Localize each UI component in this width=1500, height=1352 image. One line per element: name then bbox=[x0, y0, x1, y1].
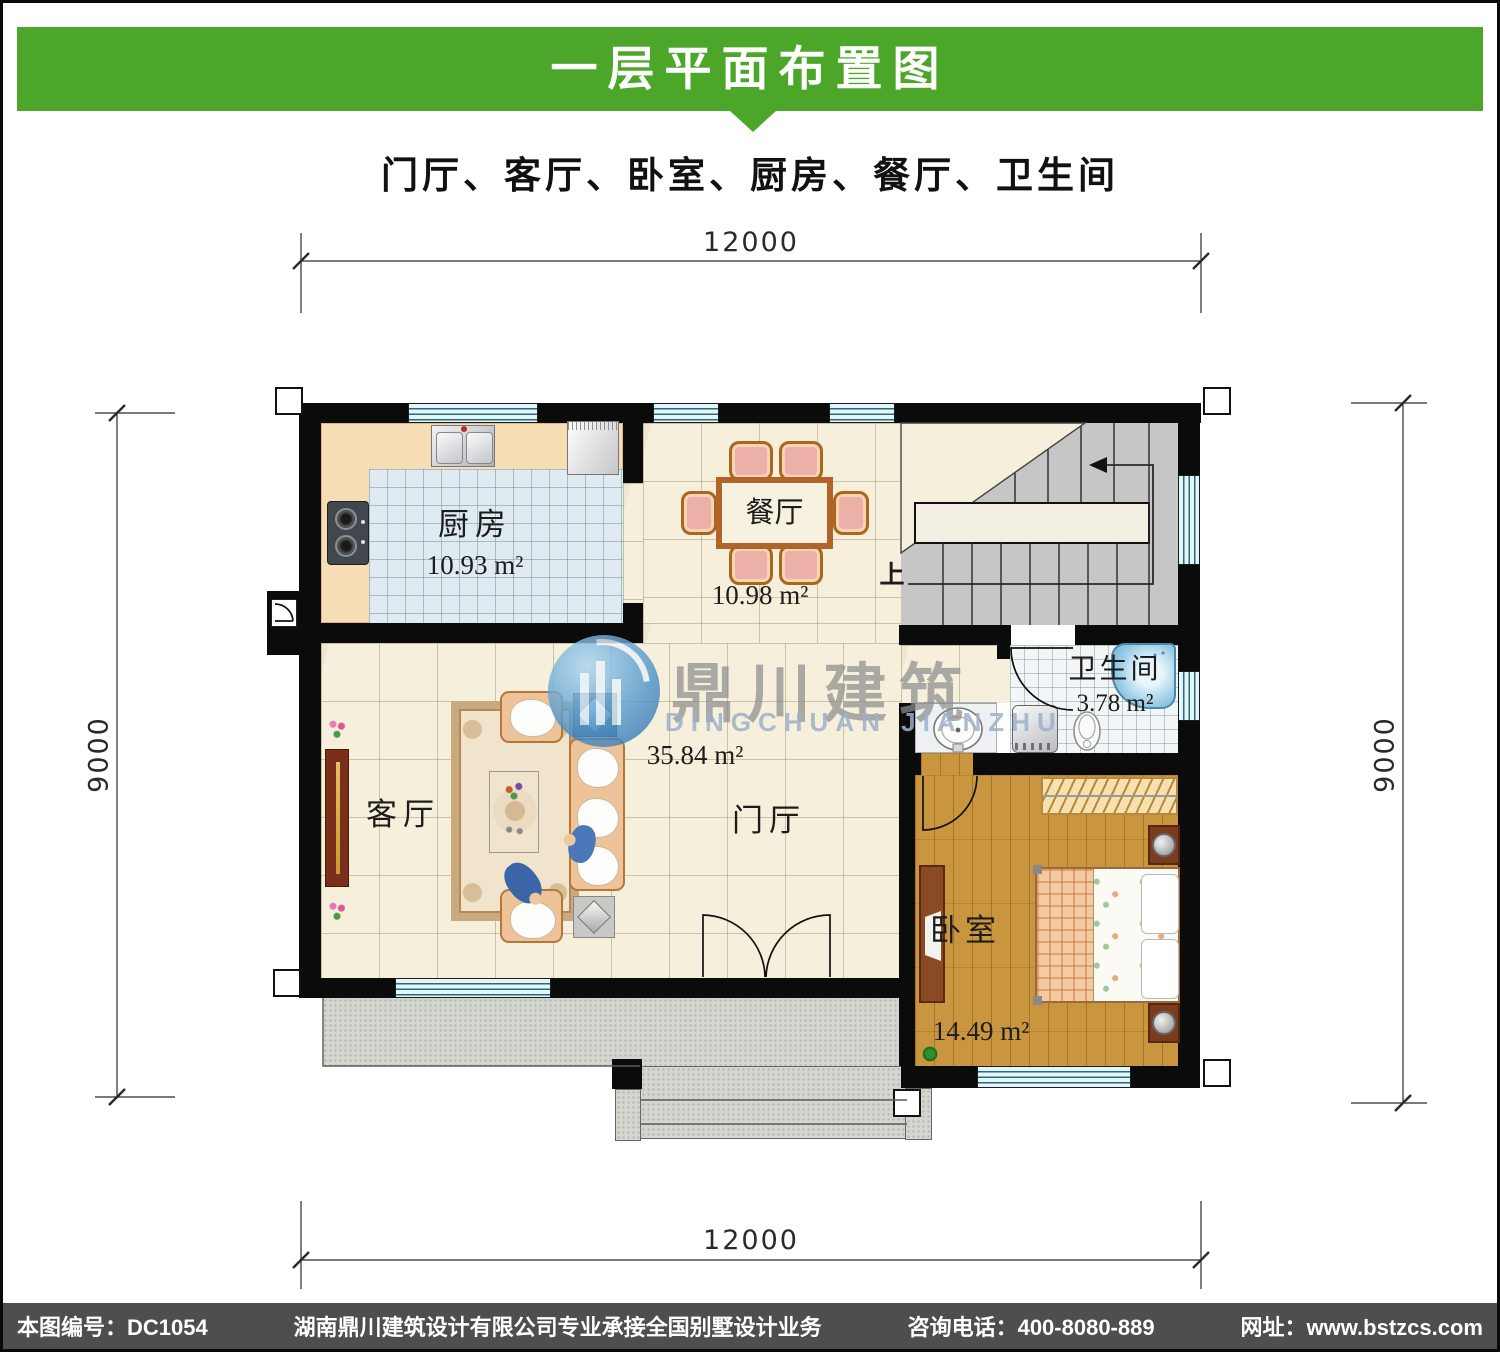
stair-handrail bbox=[915, 503, 1149, 543]
floor-plan: 餐厅 bbox=[3, 3, 1500, 1352]
stair-up-arrowhead bbox=[1089, 457, 1107, 473]
dim-right-value: 9000 bbox=[1370, 695, 1401, 815]
footer-website: 网址：www.bstzcs.com bbox=[1241, 1310, 1483, 1342]
kitchen-label: 厨房 bbox=[415, 509, 535, 542]
dim-top-value: 12000 bbox=[681, 227, 821, 258]
kitchen-area-label: 10.93 m² bbox=[395, 551, 555, 579]
foyer-area-label: 35.84 m² bbox=[615, 741, 775, 769]
squat-toilet bbox=[1074, 712, 1100, 750]
bedroom-label: 卧室 bbox=[905, 915, 1025, 948]
footer-bar: 本图编号：DC1054 湖南鼎川建筑设计有限公司专业承接全国别墅设计业务 咨询电… bbox=[3, 1303, 1497, 1349]
footer-company: 湖南鼎川建筑设计有限公司专业承接全国别墅设计业务 bbox=[294, 1310, 822, 1342]
porch-outline bbox=[323, 998, 640, 1066]
wash-basin-drain bbox=[956, 728, 961, 733]
stairs bbox=[901, 423, 1153, 625]
foyer-label: 门厅 bbox=[709, 805, 829, 838]
porch-lines bbox=[323, 998, 907, 1124]
dim-bottom-value: 12000 bbox=[681, 1225, 821, 1256]
dim-left-value: 9000 bbox=[84, 695, 115, 815]
living-label: 客厅 bbox=[343, 799, 463, 832]
dining-area-label: 10.98 m² bbox=[680, 581, 840, 609]
kitchen-side-door bbox=[275, 604, 293, 621]
plan-linework bbox=[3, 3, 1500, 1352]
bedroom-area-label: 14.49 m² bbox=[901, 1017, 1061, 1045]
entrance-door-left bbox=[703, 915, 765, 977]
floor-plan-page: 一层平面布置图 门厅、客厅、卧室、厨房、餐厅、卫生间 bbox=[0, 0, 1500, 1352]
stairs-up-label: 上 bbox=[877, 563, 907, 589]
entrance-door-right bbox=[766, 915, 830, 977]
bathroom-area-label: 3.78 m² bbox=[1045, 691, 1185, 717]
wash-basin-tap bbox=[953, 744, 963, 752]
bedroom-door bbox=[923, 776, 977, 830]
footer-phone: 咨询电话：400-8080-889 bbox=[908, 1310, 1155, 1342]
footer-drawing-number: 本图编号：DC1054 bbox=[17, 1310, 208, 1342]
bathroom-label: 卫生间 bbox=[1050, 655, 1180, 684]
